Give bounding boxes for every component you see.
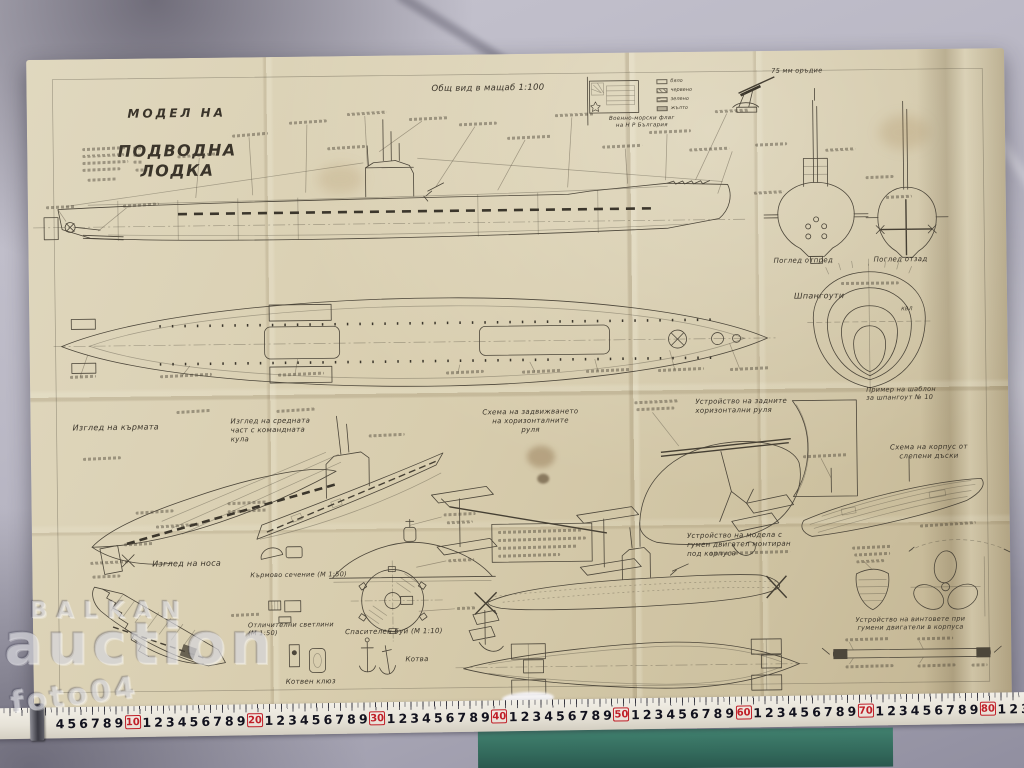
tape-digit: 2 [885,703,897,719]
tape-digit: 5 [188,714,200,730]
tape-digit: 8 [956,702,968,718]
tape-digit: 4 [665,707,677,723]
tape-digit: 4 [543,708,555,724]
tape-digit: 1 [996,701,1008,717]
legend-swatch-red [656,88,667,93]
tape-decade-mark: 70 [858,703,874,717]
tape-digit: 3 [775,705,787,721]
flag-legend-row: червено [656,87,692,93]
tape-digit: 3 [286,713,298,729]
caption-frames: Шпангоути [794,291,844,302]
tape-digit: 8 [468,710,480,726]
caption-rescue-buoy: Спасителен буй (М 1:10) [345,627,443,637]
tape-digit: 1 [629,707,641,723]
tape-digit: 1 [263,713,275,729]
stern-3d-view [91,452,342,574]
tape-decade-mark: 80 [980,702,996,716]
tape-digit: 5 [921,703,933,719]
tape-digit: 6 [566,708,578,724]
caption-stern-view: Изглед на кърмата [73,422,160,433]
tape-digit: 4 [54,716,66,732]
caption-kvl: КВЛ [901,306,913,312]
tape-digit: 7 [944,702,956,718]
tape-digit: 4 [298,712,310,728]
tape-digit: 2 [275,713,287,729]
tape-digit: 6 [810,704,822,720]
tape-digit: 6 [322,712,334,728]
illegible-annotation [133,154,143,157]
tape-digit: 4 [420,710,432,726]
legend-label: бяло [670,78,682,84]
legend-label: червено [670,87,692,93]
tape-digit: 7 [89,716,101,732]
illegible-annotation [971,663,987,666]
tape-digit: 8 [712,706,724,722]
tape-digit: 3 [409,711,421,727]
tape-digit: 4 [176,714,188,730]
auction-photo: МОДЕЛ НА ПОДВОДНА ЛОДКА Общ вид в мащаб … [0,0,1024,768]
tape-digit: 7 [334,712,346,728]
bow-body-view [762,88,868,264]
tape-digit: 9 [235,713,247,729]
tape-digit: 1 [141,715,153,731]
legend-swatch-yellow [657,106,668,111]
tape-digit: 7 [456,710,468,726]
tape-digit: 3 [653,707,665,723]
caption-stern-section: Кърмово сечение (М 1:50) [250,570,365,580]
frames-body-plan [807,258,933,395]
caption-hawse: Котвен клюз [286,677,336,686]
tape-digit: 6 [78,716,90,732]
tape-digit: 3 [1019,701,1024,717]
tape-digit: 6 [200,714,212,730]
tape-digit: 2 [641,707,653,723]
green-table-board [478,728,893,768]
tape-decade-mark: 10 [125,715,141,729]
tape-digit: 5 [432,710,444,726]
legend-swatch-white [656,79,667,84]
deck-gun-drawing [732,77,774,113]
tape-digit: 2 [397,711,409,727]
tape-digit: 8 [345,712,357,728]
tape-digit: 2 [763,705,775,721]
tape-digit: 8 [834,704,846,720]
paper-stain [537,474,549,484]
rubber-band-shaft [822,640,1001,664]
tape-digit: 7 [700,706,712,722]
tape-digit: 1 [507,709,519,725]
caption-view-aft: Поглед отзад [874,255,928,264]
propeller-detail [856,539,1011,618]
tape-digit: 7 [822,704,834,720]
caption-lights-section: Отличителни светлини (М 1:50) [248,620,358,638]
sheet-paper: МОДЕЛ НА ПОДВОДНА ЛОДКА Общ вид в мащаб … [26,48,1012,709]
caption-frame-template: Пример на шаблон за шпангоут № 10 [866,385,961,402]
tape-digit: 5 [66,716,78,732]
tape-digit: 5 [677,706,689,722]
tape-digit: 3 [897,703,909,719]
bow-3d-view [93,586,226,668]
tape-decade-mark: 60 [736,705,752,719]
tape-digit: 1 [874,703,886,719]
caption-anchor: Котва [405,655,428,664]
tape-decade-mark: 30 [369,711,385,725]
caption-glued-hull: Схема на корпус от слепени дъски [869,442,989,461]
illegible-annotation [135,169,147,172]
legend-swatch-green [657,97,668,102]
legend-label: зелено [671,96,689,102]
tape-decade-mark: 40 [491,709,507,723]
flag-legend-row: зелено [657,96,689,102]
tape-digit: 9 [602,708,614,724]
tape-digit: 9 [724,706,736,722]
tape-digit: 8 [590,708,602,724]
tape-digit: 8 [101,715,113,731]
tape-digit: 5 [310,712,322,728]
caption-naval-flag: Военно-морски флаг на Н Р България [602,115,682,130]
tape-digit: 6 [688,706,700,722]
tape-digit: 5 [799,704,811,720]
tape-digit: 2 [153,715,165,731]
tape-digit: 7 [578,708,590,724]
legend-label: жълто [671,105,688,111]
flag-legend-row: жълто [657,105,688,111]
tape-digit: 5 [554,708,566,724]
tape-digit: 2 [1008,701,1020,717]
tape-digit: 9 [357,711,369,727]
tape-digit: 2 [519,709,531,725]
caption-planes-scheme: Схема на задвижването на хоризонталните … [470,407,590,435]
tape-digit: 4 [787,705,799,721]
caption-view-front: Поглед отпред [774,256,834,265]
caption-aft-planes: Устройство на задните хоризонтални руля [695,396,820,415]
title-line1: МОДЕЛ НА [97,105,257,122]
sheet-title: МОДЕЛ НА ПОДВОДНА ЛОДКА [96,85,257,202]
tape-digit: 1 [385,711,397,727]
tape-digit: 6 [444,710,456,726]
flag-legend-row: бяло [656,78,682,84]
tape-decade-mark: 50 [613,707,629,721]
tape-hook [30,704,45,741]
caption-rubber-motor: Устройство на модела с гумен двигател мо… [687,530,832,558]
caption-bow-view: Изглед на носа [152,559,221,570]
illegible-annotation [133,161,143,164]
tape-digit: 3 [531,709,543,725]
caption-prop-device: Устройство на винтовете при гумени двига… [828,614,993,632]
tape-digit: 4 [909,703,921,719]
tape-digit: 3 [164,714,176,730]
tape-decade-mark: 20 [247,713,263,727]
tape-digit: 8 [223,714,235,730]
hawse-anchor-icons [289,638,395,676]
caption-general-view: Общ вид в мащаб 1:100 [431,83,544,95]
tape-digit: 9 [846,704,858,720]
tape-digit: 1 [752,705,764,721]
tape-digit: 9 [113,715,125,731]
tape-digit: 6 [933,702,945,718]
tape-digit: 9 [479,709,491,725]
section-icons [259,545,303,623]
caption-midship-view: Изглед на средната част с командната кул… [230,416,330,443]
tape-digit: 7 [211,714,223,730]
illegible-annotation [133,147,143,150]
frame-template-drawing [792,400,857,497]
caption-deck-gun: 75 мм оръдие [771,66,822,75]
tape-digit: 9 [968,702,980,718]
